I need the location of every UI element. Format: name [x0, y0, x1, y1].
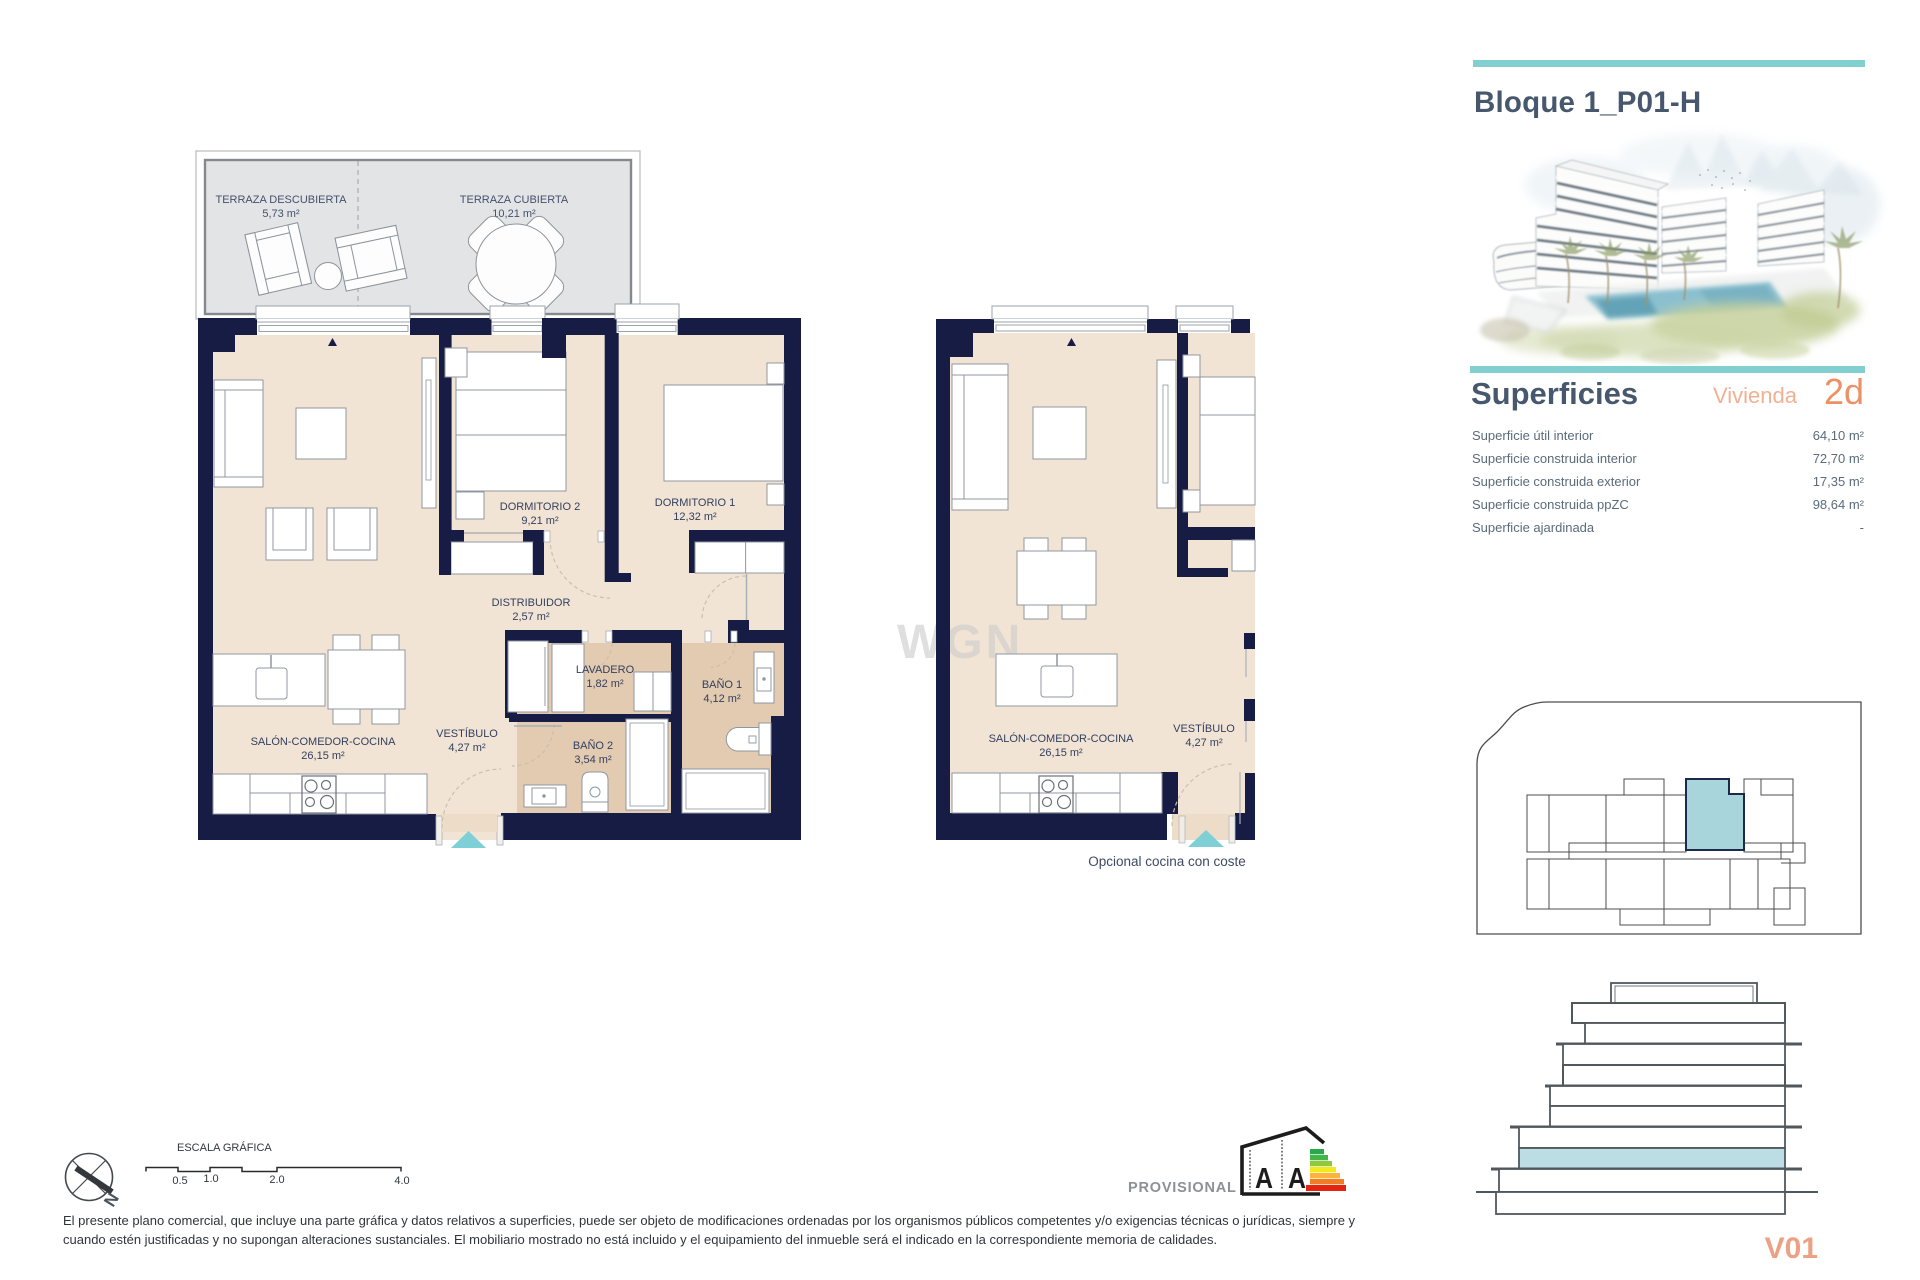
svg-text:2.0: 2.0	[269, 1174, 284, 1186]
svg-text:2,57 m²: 2,57 m²	[512, 611, 550, 623]
svg-text:5,73 m²: 5,73 m²	[262, 208, 300, 220]
svg-text:2d: 2d	[1824, 371, 1864, 412]
svg-text:Superficie ajardinada: Superficie ajardinada	[1472, 520, 1595, 535]
svg-text:LAVADERO: LAVADERO	[576, 664, 635, 676]
svg-text:DISTRIBUIDOR: DISTRIBUIDOR	[492, 597, 571, 609]
svg-text:TERRAZA CUBIERTA: TERRAZA CUBIERTA	[460, 194, 569, 206]
svg-text:72,70 m²: 72,70 m²	[1813, 451, 1865, 466]
svg-text:1,82 m²: 1,82 m²	[586, 678, 624, 690]
svg-text:SALÓN-COMEDOR-COCINA: SALÓN-COMEDOR-COCINA	[989, 732, 1135, 745]
svg-text:V01: V01	[1765, 1232, 1818, 1265]
svg-text:12,32 m²: 12,32 m²	[673, 511, 717, 523]
svg-text:El presente plano comercial, q: El presente plano comercial, que incluye…	[63, 1213, 1356, 1228]
svg-text:-: -	[1860, 520, 1864, 535]
svg-text:4,27 m²: 4,27 m²	[448, 742, 486, 754]
svg-text:0.5: 0.5	[172, 1175, 187, 1187]
svg-text:TERRAZA DESCUBIERTA: TERRAZA DESCUBIERTA	[215, 194, 347, 206]
svg-text:BAÑO 2: BAÑO 2	[573, 739, 613, 752]
svg-text:SALÓN-COMEDOR-COCINA: SALÓN-COMEDOR-COCINA	[251, 735, 397, 748]
svg-text:Superficie construida exterior: Superficie construida exterior	[1472, 474, 1641, 489]
svg-text:3,54 m²: 3,54 m²	[574, 754, 612, 766]
svg-text:4,27 m²: 4,27 m²	[1185, 737, 1223, 749]
svg-text:Superficie útil interior: Superficie útil interior	[1472, 428, 1594, 443]
svg-text:Superficies: Superficies	[1471, 376, 1638, 411]
svg-text:Superficie construida interior: Superficie construida interior	[1472, 451, 1637, 466]
svg-text:VESTÍBULO: VESTÍBULO	[1173, 722, 1235, 735]
svg-text:Bloque 1_P01-H: Bloque 1_P01-H	[1474, 86, 1701, 119]
svg-text:Vivienda: Vivienda	[1713, 383, 1798, 408]
svg-text:A: A	[1255, 1163, 1273, 1195]
svg-text:Opcional cocina con coste: Opcional cocina con coste	[1088, 854, 1246, 869]
svg-text:17,35 m²: 17,35 m²	[1813, 474, 1865, 489]
svg-text:DORMITORIO 1: DORMITORIO 1	[655, 497, 735, 509]
svg-text:A: A	[1288, 1163, 1306, 1195]
svg-text:VESTÍBULO: VESTÍBULO	[436, 727, 498, 740]
svg-text:PROVISIONAL: PROVISIONAL	[1128, 1180, 1237, 1196]
svg-text:4.0: 4.0	[394, 1175, 409, 1187]
svg-text:26,15 m²: 26,15 m²	[1039, 747, 1083, 759]
svg-text:BAÑO 1: BAÑO 1	[702, 678, 742, 691]
svg-text:98,64 m²: 98,64 m²	[1813, 497, 1865, 512]
svg-text:64,10 m²: 64,10 m²	[1813, 428, 1865, 443]
svg-text:4,12 m²: 4,12 m²	[703, 693, 741, 705]
svg-text:Superficie construida ppZC: Superficie construida ppZC	[1472, 497, 1629, 512]
svg-text:DORMITORIO 2: DORMITORIO 2	[500, 501, 580, 513]
svg-text:9,21 m²: 9,21 m²	[521, 515, 559, 527]
svg-text:ESCALA GRÁFICA: ESCALA GRÁFICA	[177, 1141, 272, 1154]
svg-text:1.0: 1.0	[203, 1173, 218, 1185]
svg-text:26,15 m²: 26,15 m²	[301, 750, 345, 762]
svg-text:cuando estén justificadas y no: cuando estén justificadas y no supongan …	[63, 1232, 1217, 1247]
